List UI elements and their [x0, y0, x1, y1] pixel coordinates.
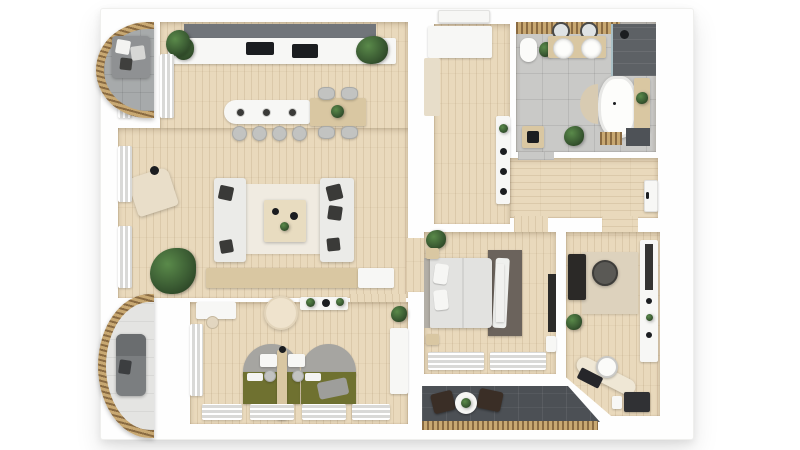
living-curtain-balcony — [160, 54, 174, 118]
sofa-left-cushion — [219, 239, 234, 254]
entrance-door — [438, 10, 490, 23]
coffee-table-plant — [280, 222, 289, 231]
bed-blanket-fold — [462, 258, 464, 328]
dining-chair — [341, 87, 358, 100]
bedroom-console — [546, 336, 556, 352]
pendant-lamp — [236, 108, 245, 117]
sideboard-end — [358, 268, 394, 288]
shower-head — [620, 30, 629, 39]
kids-curtain — [202, 404, 242, 420]
kids-bed-pillow — [305, 373, 321, 381]
dining-chair — [341, 126, 358, 139]
kids-shelf-plant — [336, 298, 344, 306]
bath-slat-mat — [600, 132, 622, 145]
hall-shelf-plant — [499, 124, 508, 133]
hall-shelf-decor — [500, 188, 507, 195]
nightstand — [426, 334, 439, 345]
living-plant-large — [150, 248, 196, 294]
kids-curtain — [302, 404, 346, 420]
hall-shelf-decor — [500, 148, 507, 155]
sofa-right-cushion — [326, 237, 340, 251]
coffee-table-decor — [290, 212, 298, 220]
lounge-chair-item — [118, 359, 132, 375]
outdoor-sofa-cushion — [115, 39, 131, 55]
office-shelf-decor — [646, 298, 652, 304]
coffee-table — [264, 200, 306, 242]
lounge-chair-back — [116, 334, 146, 356]
terrace-railing — [422, 421, 598, 430]
bed-foot-bench — [496, 264, 504, 322]
office-chair — [592, 260, 618, 286]
bar-stool — [292, 126, 307, 141]
bar-stool — [272, 126, 287, 141]
kids-stool — [264, 370, 276, 382]
outdoor-sofa-cushion — [119, 57, 132, 70]
dining-table-plant — [331, 105, 344, 118]
sideboard — [206, 268, 358, 288]
toilet — [520, 38, 537, 62]
pendant-lamp — [288, 108, 297, 117]
shower — [612, 24, 656, 76]
outdoor-sofa-cushion — [130, 45, 146, 61]
sofa-right-cushion — [327, 205, 343, 221]
pendant-lamp — [262, 108, 271, 117]
kids-wardrobe-curtain — [190, 324, 203, 396]
kids-stool — [292, 370, 304, 382]
kids-divider-decor — [279, 346, 286, 353]
kitchen-cooktop — [292, 44, 318, 58]
office-shelf-plant — [646, 314, 653, 321]
corridor-door-handle — [646, 192, 649, 199]
kids-small-desk — [260, 354, 277, 367]
bedroom-curtain — [490, 352, 546, 370]
hall-runner-mat — [424, 58, 440, 116]
kids-curtain — [352, 404, 390, 420]
floor-plan-canvas — [0, 0, 800, 450]
hall-wardrobe — [428, 26, 492, 58]
bathroom-plant-2 — [564, 126, 584, 146]
vanity-sink — [553, 38, 574, 59]
kitchen-sink — [246, 42, 274, 55]
living-curtain-west — [118, 226, 132, 288]
office-shelf-decor — [646, 332, 652, 338]
terrace-table-plant — [461, 398, 471, 408]
hall-shelf-decor — [500, 168, 507, 175]
doorway-office — [602, 216, 638, 234]
dining-chair — [318, 87, 335, 100]
bed-pillow — [433, 263, 450, 285]
office-cabinet — [624, 392, 650, 412]
floor-lamp — [150, 166, 159, 175]
bedroom-curtain — [428, 352, 484, 370]
kids-small-desk — [288, 354, 305, 367]
tv-panel — [548, 274, 556, 332]
kids-shelf-plant — [306, 298, 315, 307]
kids-pouf — [264, 296, 298, 330]
bath-bench-plant — [636, 92, 648, 104]
living-curtain-west — [118, 146, 132, 202]
kitchen-upper-cabinets — [184, 24, 376, 38]
office-plant — [566, 314, 582, 330]
kids-bed-pillow — [247, 373, 263, 381]
nightstand — [426, 248, 439, 259]
bed-pillow — [433, 289, 449, 310]
office-mirror — [645, 244, 653, 290]
bath-bench — [634, 78, 650, 132]
shower-glass — [611, 24, 613, 76]
bath-cabinet-niche — [527, 131, 539, 143]
office-desk — [568, 254, 586, 300]
kitchen-plant-right — [356, 36, 388, 64]
bar-stool — [232, 126, 247, 141]
bathtub-drain — [613, 102, 616, 105]
kids-desk-right — [390, 328, 408, 394]
bar-stool — [252, 126, 267, 141]
kids-desk-chair — [206, 316, 219, 329]
vanity-sink — [581, 38, 602, 59]
living-plant-corner — [166, 30, 190, 56]
sofa-left-cushion — [218, 185, 235, 202]
kids-shelf-decor — [322, 299, 330, 307]
office-storage-box — [612, 396, 622, 409]
bath-dark-mat — [626, 128, 650, 146]
bedroom-plant — [426, 230, 446, 249]
office-white-chair — [596, 356, 618, 378]
dining-chair — [318, 126, 335, 139]
corridor-floor — [510, 158, 658, 218]
kids-plant — [391, 306, 407, 322]
coffee-table-decor — [272, 208, 279, 215]
kids-curtain — [250, 404, 294, 420]
